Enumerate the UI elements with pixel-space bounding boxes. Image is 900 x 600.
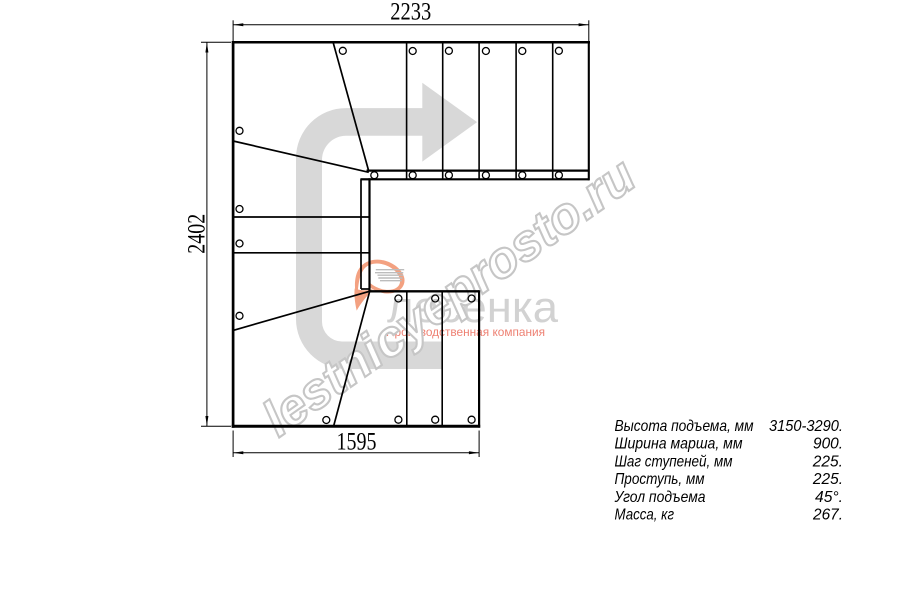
svg-text:Высота подъема, мм: Высота подъема, мм	[615, 418, 754, 435]
svg-text:267.: 267.	[812, 507, 843, 524]
svg-text:2233: 2233	[390, 0, 431, 26]
svg-text:Шаг ступеней, мм: Шаг ступеней, мм	[615, 453, 733, 470]
svg-text:225.: 225.	[812, 453, 843, 470]
svg-text:225.: 225.	[812, 471, 843, 488]
svg-text:1595: 1595	[337, 429, 377, 456]
svg-text:Ширина марша, мм: Ширина марша, мм	[615, 436, 743, 453]
svg-text:Масса, кг: Масса, кг	[615, 507, 675, 524]
svg-text:3150-3290.: 3150-3290.	[769, 418, 843, 435]
svg-text:Проступь, мм: Проступь, мм	[615, 471, 705, 488]
svg-text:45°.: 45°.	[815, 489, 843, 506]
svg-text:Угол подъема: Угол подъема	[614, 489, 706, 506]
svg-text:2402: 2402	[184, 214, 211, 254]
svg-text:900.: 900.	[813, 436, 843, 453]
